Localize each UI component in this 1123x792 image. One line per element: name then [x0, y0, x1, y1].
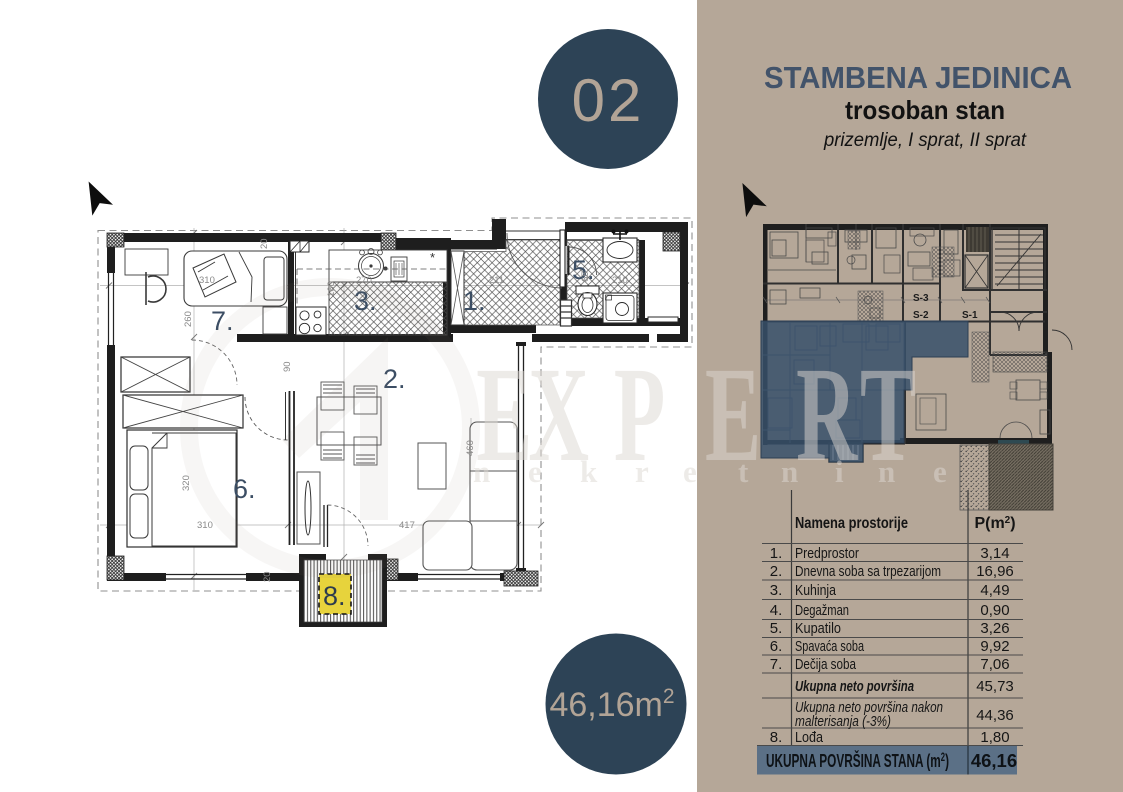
svg-text:7.: 7. — [770, 656, 783, 673]
svg-text:trosoban stan: trosoban stan — [845, 95, 1005, 125]
svg-text:210: 210 — [612, 275, 628, 286]
svg-text:5.: 5. — [770, 620, 783, 637]
svg-text:20: 20 — [262, 571, 273, 582]
svg-text:0,90: 0,90 — [980, 602, 1009, 619]
svg-text:9,92: 9,92 — [980, 638, 1009, 655]
svg-text:20: 20 — [259, 238, 270, 249]
svg-text:Namena prostorije: Namena prostorije — [795, 515, 908, 532]
svg-text:Kupatilo: Kupatilo — [795, 620, 841, 637]
svg-text:Lođa: Lođa — [795, 729, 824, 746]
svg-text:*: * — [430, 250, 435, 265]
svg-text:260: 260 — [183, 311, 194, 327]
svg-text:3,26: 3,26 — [980, 620, 1009, 637]
svg-text:310: 310 — [197, 520, 213, 531]
svg-text:prizemlje, I sprat, II sprat: prizemlje, I sprat, II sprat — [823, 129, 1027, 151]
svg-text:8.: 8. — [323, 581, 346, 611]
svg-text:6.: 6. — [770, 638, 783, 655]
svg-text:46,16: 46,16 — [971, 750, 1017, 771]
svg-text:malterisanja (-3%): malterisanja (-3%) — [795, 713, 891, 730]
svg-text:Spavaća soba: Spavaća soba — [795, 638, 864, 655]
svg-text:4,49: 4,49 — [980, 582, 1009, 599]
svg-text:S-1: S-1 — [962, 310, 978, 321]
svg-text:1,80: 1,80 — [980, 729, 1009, 746]
svg-text:1.: 1. — [770, 545, 783, 562]
svg-text:8.: 8. — [770, 729, 783, 746]
svg-text:7,06: 7,06 — [980, 656, 1009, 673]
svg-text:Ukupna neto površina: Ukupna neto površina — [795, 678, 914, 695]
svg-text:211: 211 — [489, 275, 504, 286]
svg-text:310: 310 — [199, 275, 215, 286]
svg-text:1.: 1. — [463, 286, 486, 316]
svg-text:46,16m2: 46,16m2 — [549, 685, 674, 724]
svg-text:65: 65 — [580, 271, 591, 282]
svg-text:16,96: 16,96 — [976, 563, 1014, 580]
svg-text:2.: 2. — [770, 563, 783, 580]
svg-text:Degažman: Degažman — [795, 602, 849, 619]
svg-text:44,36: 44,36 — [976, 707, 1014, 724]
svg-text:P(m2): P(m2) — [974, 515, 1015, 532]
svg-text:UKUPNA POVRŠINA STANA (m2): UKUPNA POVRŠINA STANA (m2) — [766, 750, 949, 771]
svg-text:45,73: 45,73 — [976, 678, 1014, 695]
svg-text:Dečija soba: Dečija soba — [795, 656, 857, 673]
svg-text:STAMBENA JEDINICA: STAMBENA JEDINICA — [764, 60, 1072, 95]
svg-text:02: 02 — [572, 67, 645, 134]
svg-text:90: 90 — [282, 361, 293, 372]
svg-text:3.: 3. — [770, 582, 783, 599]
svg-text:417: 417 — [399, 520, 415, 531]
svg-text:6.: 6. — [233, 474, 256, 504]
svg-text:3,14: 3,14 — [980, 545, 1009, 562]
svg-text:Dnevna soba sa trpezarijom: Dnevna soba sa trpezarijom — [795, 563, 941, 580]
svg-text:S-3: S-3 — [913, 293, 929, 304]
svg-text:4.: 4. — [770, 602, 783, 619]
svg-text:Predprostor: Predprostor — [795, 545, 859, 562]
svg-text:S-2: S-2 — [913, 310, 929, 321]
svg-text:Kuhinja: Kuhinja — [795, 582, 837, 599]
